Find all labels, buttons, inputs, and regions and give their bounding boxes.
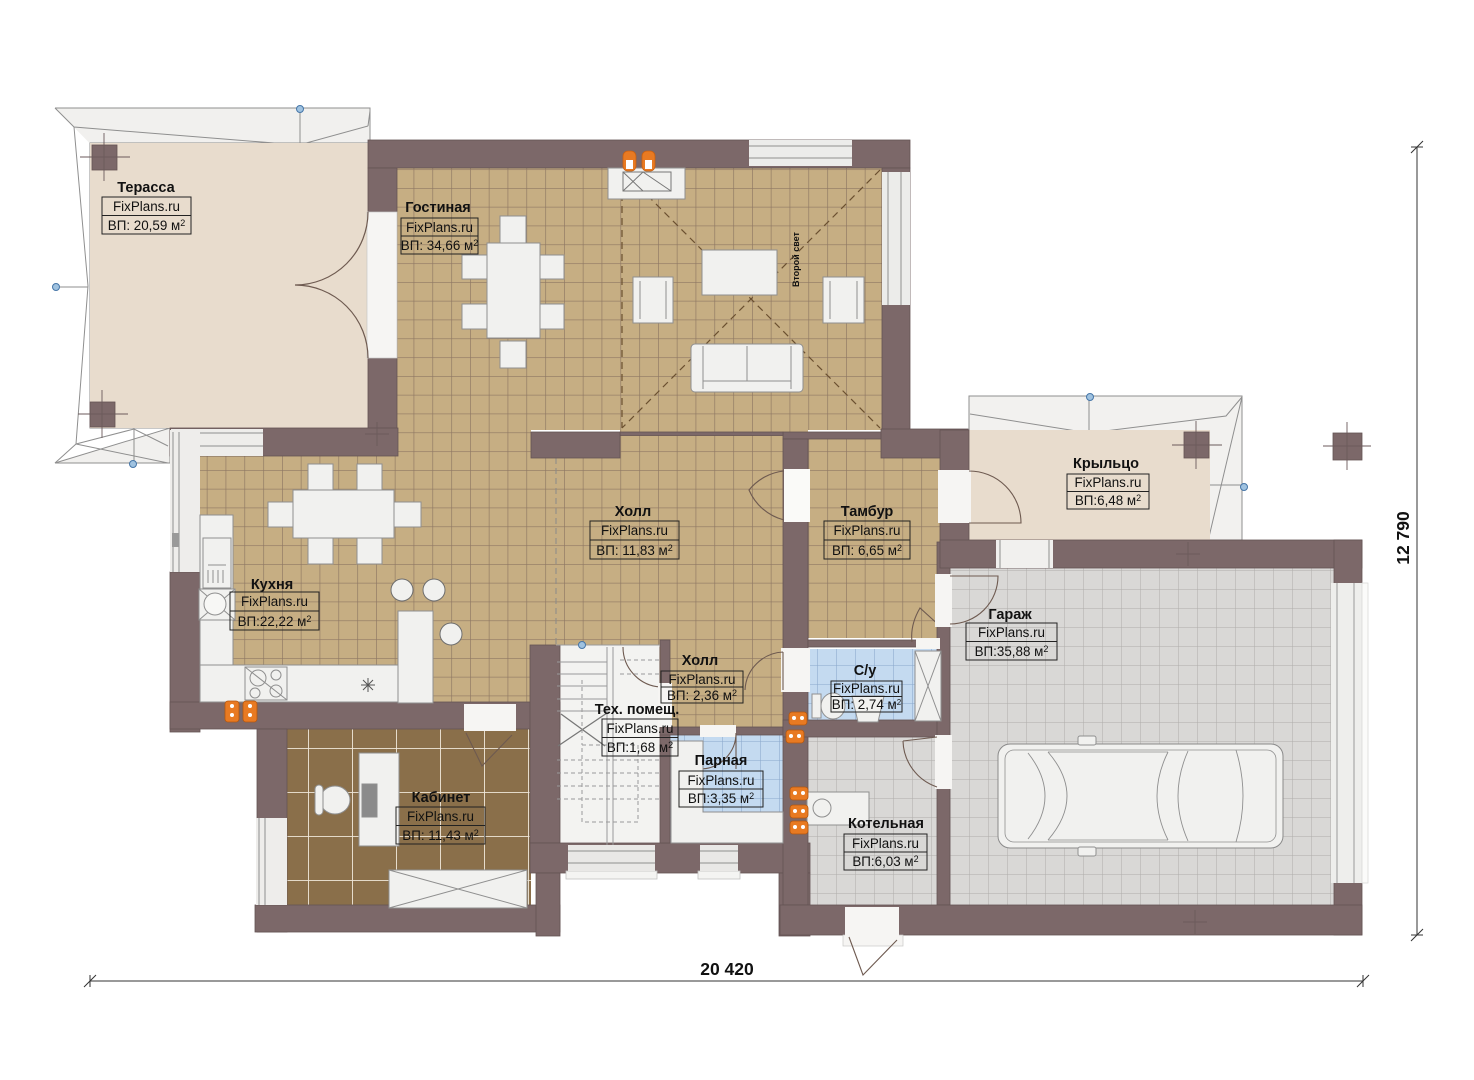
svg-text:ВП:22,22 м2: ВП:22,22 м2	[238, 614, 312, 629]
svg-text:FixPlans.ru: FixPlans.ru	[669, 672, 736, 687]
svg-text:FixPlans.ru: FixPlans.ru	[241, 594, 308, 609]
svg-text:Тамбур: Тамбур	[841, 504, 894, 520]
svg-text:12 790: 12 790	[1393, 511, 1413, 565]
svg-text:FixPlans.ru: FixPlans.ru	[601, 523, 668, 538]
svg-text:Холл: Холл	[615, 504, 651, 520]
svg-text:ВП:1,68 м2: ВП:1,68 м2	[607, 740, 673, 755]
svg-text:Терасса: Терасса	[117, 180, 175, 196]
svg-text:ВП: 2,74 м2: ВП: 2,74 м2	[832, 697, 902, 712]
svg-text:FixPlans.ru: FixPlans.ru	[1075, 475, 1142, 490]
svg-text:Тех. помещ.: Тех. помещ.	[595, 702, 680, 718]
svg-text:ВП:6,03 м2: ВП:6,03 м2	[852, 854, 918, 869]
svg-text:Котельная: Котельная	[848, 816, 924, 832]
svg-text:Гостиная: Гостиная	[405, 200, 471, 216]
svg-text:Крыльцо: Крыльцо	[1073, 456, 1139, 472]
svg-text:20 420: 20 420	[700, 959, 754, 979]
svg-text:FixPlans.ru: FixPlans.ru	[833, 681, 900, 696]
svg-text:ВП: 6,65 м2: ВП: 6,65 м2	[832, 543, 902, 558]
svg-text:FixPlans.ru: FixPlans.ru	[978, 625, 1045, 640]
svg-text:FixPlans.ru: FixPlans.ru	[688, 773, 755, 788]
svg-text:ВП: 11,83 м2: ВП: 11,83 м2	[596, 543, 672, 558]
svg-text:С/у: С/у	[854, 663, 877, 679]
svg-text:ВП: 34,66 м2: ВП: 34,66 м2	[401, 238, 478, 253]
svg-text:ВП: 11,43 м2: ВП: 11,43 м2	[402, 828, 478, 843]
svg-text:FixPlans.ru: FixPlans.ru	[607, 721, 674, 736]
svg-text:ВП: 2,36 м2: ВП: 2,36 м2	[667, 688, 737, 703]
svg-text:Второй свет: Второй свет	[791, 231, 801, 287]
svg-text:Кабинет: Кабинет	[412, 790, 471, 806]
svg-text:ВП:3,35 м2: ВП:3,35 м2	[688, 791, 754, 806]
svg-text:Гараж: Гараж	[988, 607, 1032, 623]
svg-text:FixPlans.ru: FixPlans.ru	[406, 220, 473, 235]
svg-text:FixPlans.ru: FixPlans.ru	[113, 199, 180, 214]
svg-text:FixPlans.ru: FixPlans.ru	[407, 809, 474, 824]
svg-text:ВП: 20,59 м2: ВП: 20,59 м2	[108, 218, 185, 233]
svg-text:Кухня: Кухня	[251, 577, 293, 593]
svg-text:Холл: Холл	[682, 653, 718, 669]
svg-text:FixPlans.ru: FixPlans.ru	[834, 523, 901, 538]
svg-text:ВП:35,88 м2: ВП:35,88 м2	[975, 644, 1049, 659]
svg-text:ВП:6,48 м2: ВП:6,48 м2	[1075, 493, 1141, 508]
svg-text:Парная: Парная	[695, 753, 748, 769]
svg-text:FixPlans.ru: FixPlans.ru	[852, 836, 919, 851]
